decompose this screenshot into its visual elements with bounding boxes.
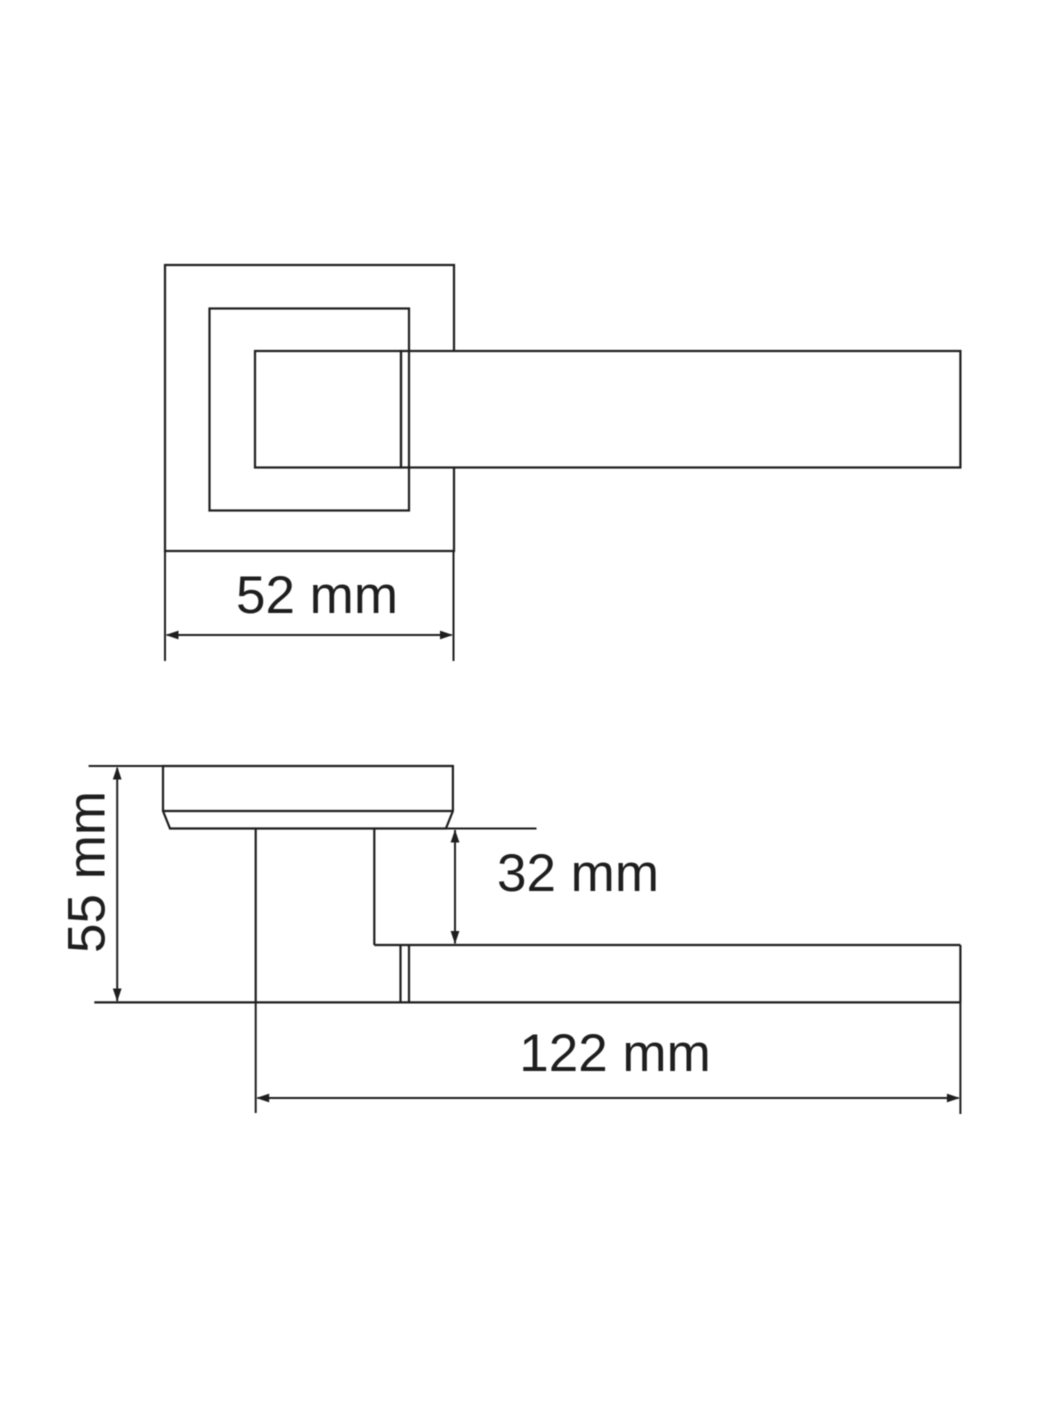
svg-text:52 mm: 52 mm	[236, 566, 398, 625]
svg-text:122 mm: 122 mm	[519, 1024, 710, 1083]
svg-text:55 mm: 55 mm	[58, 791, 117, 953]
svg-text:32 mm: 32 mm	[497, 844, 659, 903]
